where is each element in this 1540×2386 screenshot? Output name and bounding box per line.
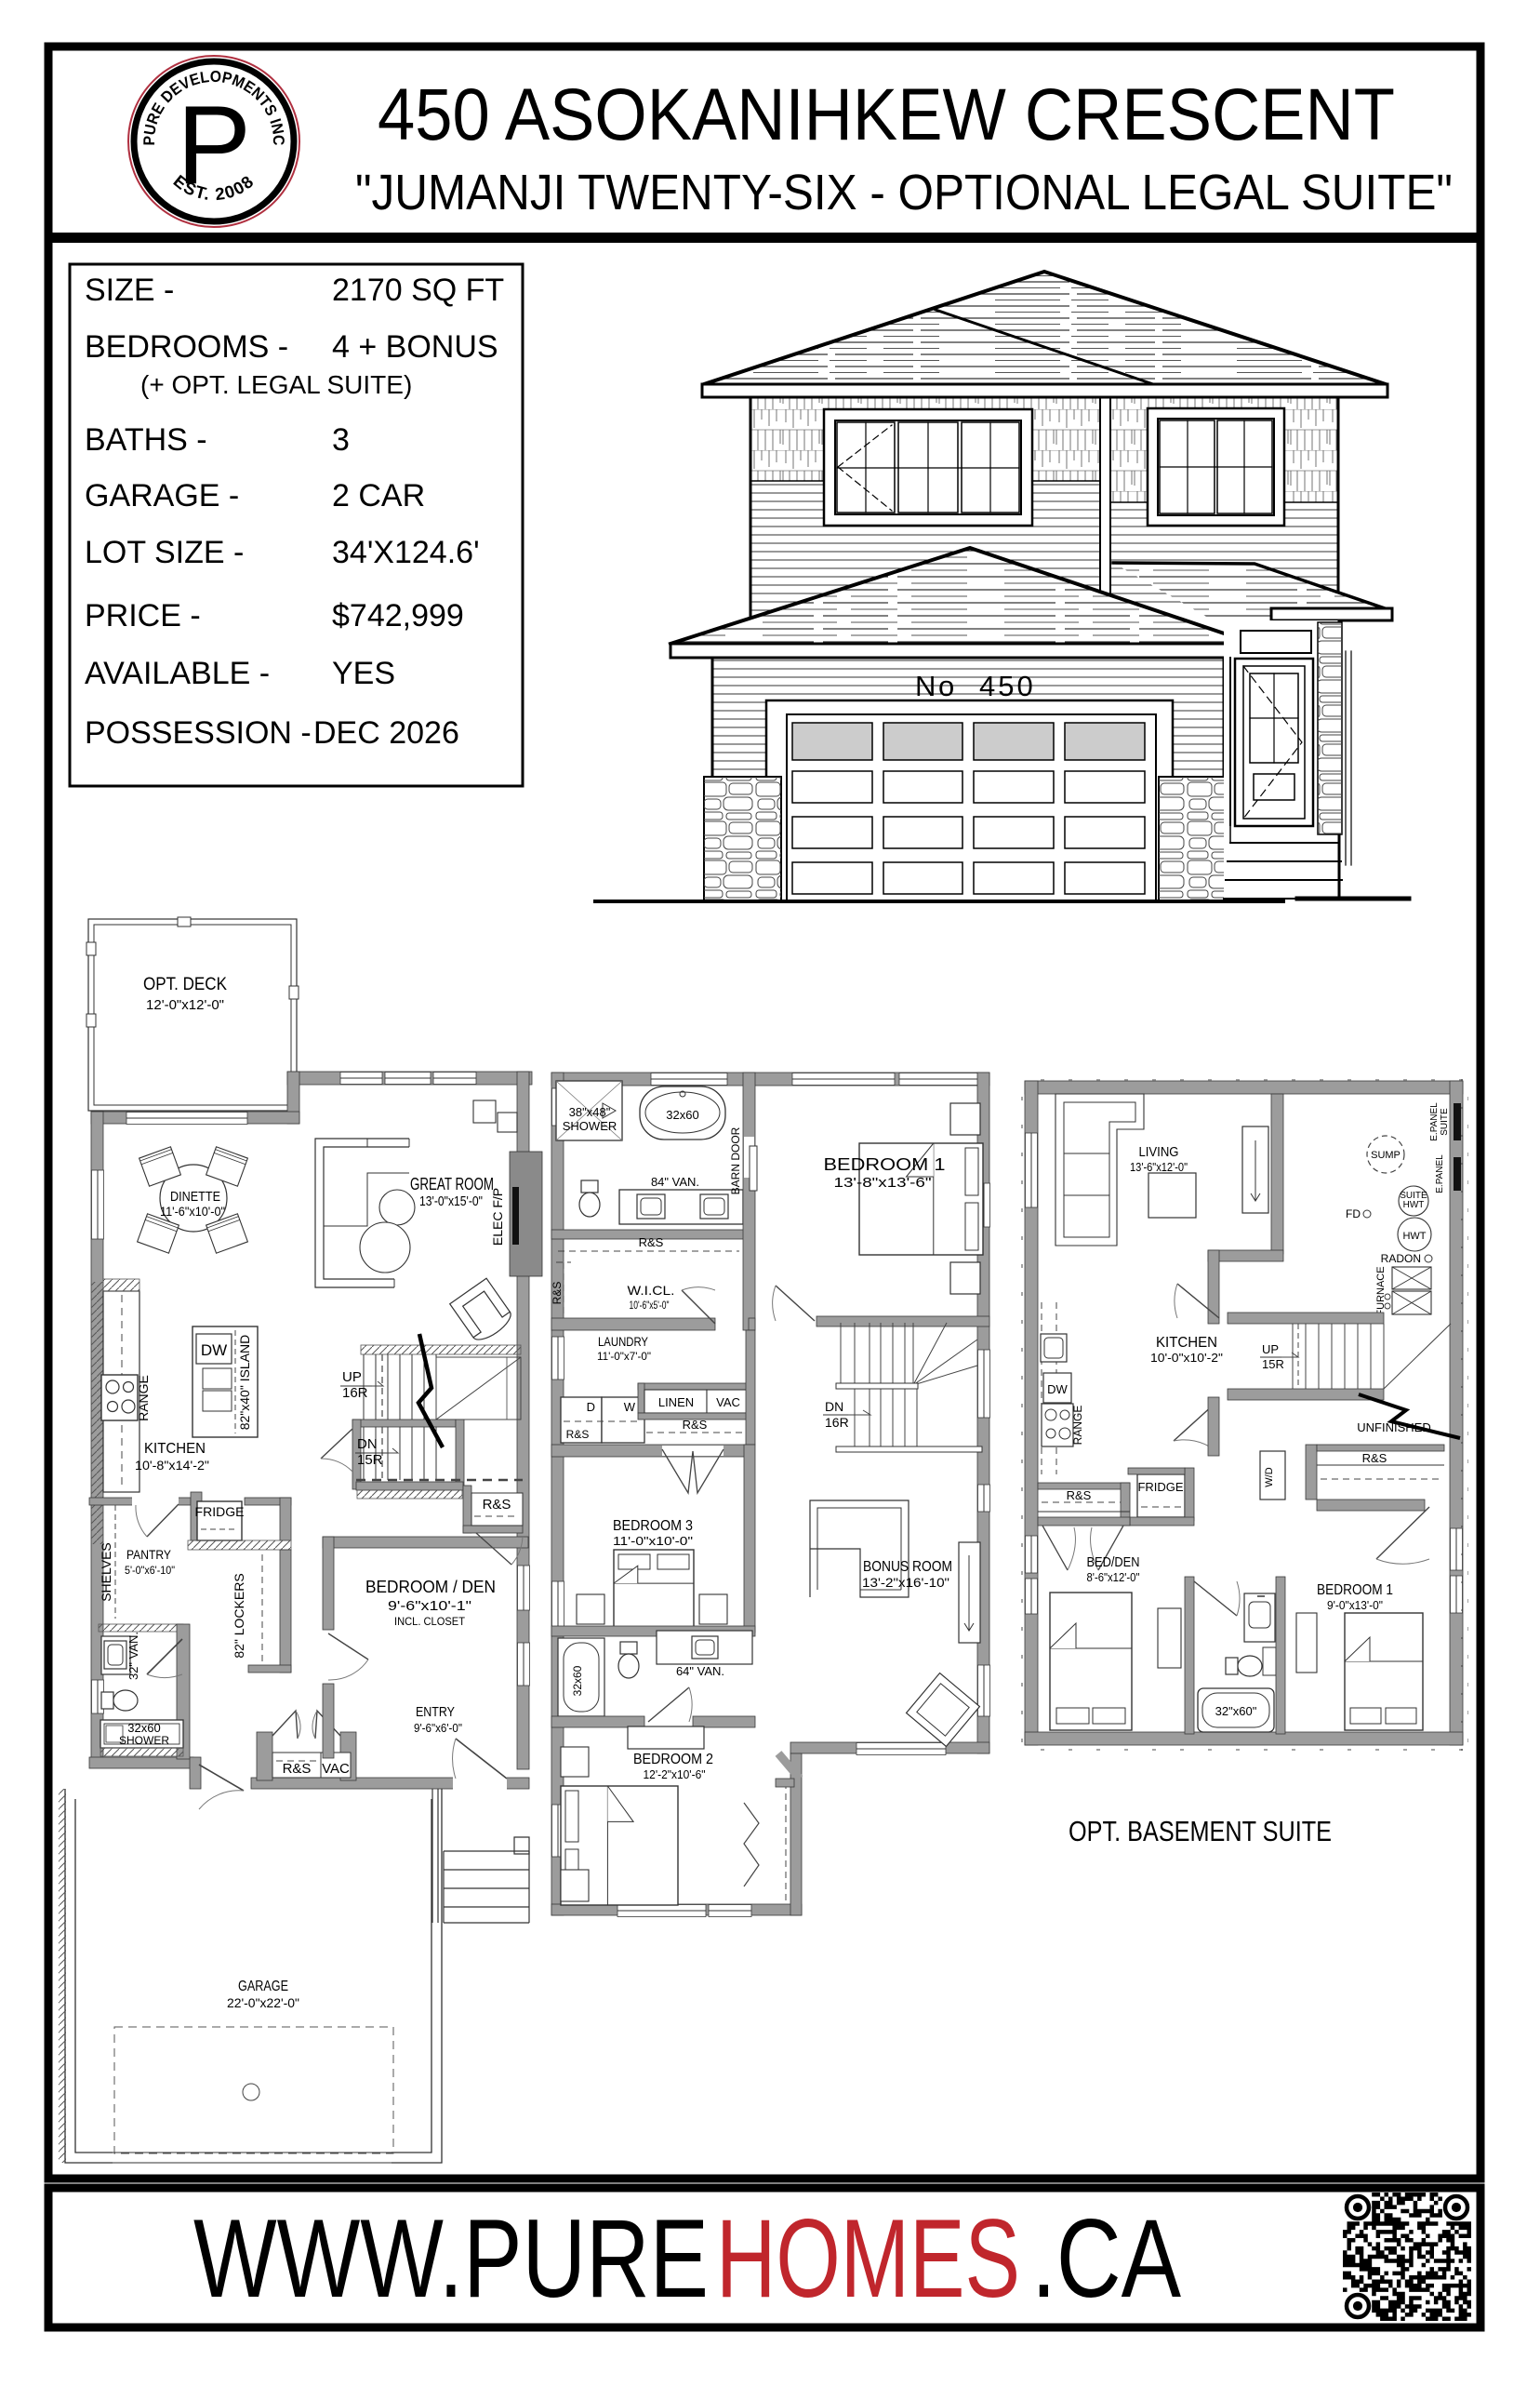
svg-text:450 ASOKANIHKEW CRESCENT: 450 ASOKANIHKEW CRESCENT — [378, 73, 1395, 155]
svg-text:RANGE: RANGE — [1071, 1406, 1084, 1446]
svg-text:HWT: HWT — [1402, 1231, 1426, 1242]
svg-text:DINETTE: DINETTE — [170, 1189, 220, 1205]
svg-text:11'-6"x10'-0": 11'-6"x10'-0" — [160, 1204, 225, 1219]
svg-text:11'-0"x7'-0": 11'-0"x7'-0" — [597, 1350, 651, 1363]
svg-text:BEDROOM 2: BEDROOM 2 — [633, 1752, 713, 1767]
svg-text:HWT: HWT — [1403, 1200, 1425, 1210]
svg-text:8'-6"x12'-0": 8'-6"x12'-0" — [1087, 1570, 1140, 1584]
svg-text:AVAILABLE -: AVAILABLE - — [85, 656, 270, 691]
svg-text:9'-6"x6'-0": 9'-6"x6'-0" — [414, 1721, 462, 1735]
svg-text:2 CAR: 2 CAR — [332, 478, 425, 513]
svg-text:12'-0"x12'-0": 12'-0"x12'-0" — [146, 997, 224, 1013]
svg-text:22'-0"x22'-0": 22'-0"x22'-0" — [227, 1995, 299, 2010]
svg-text:R&S: R&S — [483, 1497, 511, 1513]
svg-text:4 + BONUS: 4 + BONUS — [332, 329, 498, 365]
svg-text:32x60: 32x60 — [127, 1721, 160, 1735]
svg-text:BED/DEN: BED/DEN — [1087, 1554, 1140, 1570]
svg-text:ENTRY: ENTRY — [416, 1704, 455, 1720]
svg-text:10'-6"x5'-0": 10'-6"x5'-0" — [630, 1299, 670, 1312]
svg-text:32"x60": 32"x60" — [1215, 1704, 1257, 1718]
svg-text:SUITE: SUITE — [1440, 1108, 1450, 1136]
svg-text:R&S: R&S — [639, 1235, 664, 1249]
svg-text:R&S: R&S — [551, 1282, 564, 1305]
svg-text:DW: DW — [1047, 1382, 1068, 1396]
svg-text:BATHS -: BATHS - — [85, 422, 207, 458]
svg-text:FRIDGE: FRIDGE — [195, 1504, 245, 1519]
svg-text:SHOWER: SHOWER — [119, 1734, 169, 1747]
svg-text:E.PANEL: E.PANEL — [1435, 1154, 1445, 1193]
svg-text:BEDROOM / DEN: BEDROOM / DEN — [365, 1578, 496, 1596]
svg-text:"JUMANJI TWENTY-SIX - OPTIONAL: "JUMANJI TWENTY-SIX - OPTIONAL LEGAL SUI… — [355, 165, 1453, 220]
svg-text:BARN DOOR: BARN DOOR — [729, 1126, 742, 1194]
svg-text:SHELVES: SHELVES — [99, 1542, 113, 1602]
svg-text:LAUNDRY: LAUNDRY — [598, 1334, 649, 1349]
svg-text:LOT SIZE -: LOT SIZE - — [85, 535, 244, 570]
svg-text:R&S: R&S — [283, 1761, 312, 1777]
svg-text:R&S: R&S — [683, 1418, 708, 1432]
svg-text:16R: 16R — [825, 1415, 849, 1430]
svg-text:UNFINISHED: UNFINISHED — [1357, 1420, 1430, 1434]
svg-text:N: N — [915, 670, 936, 702]
svg-text:13'-8"x13'-6": 13'-8"x13'-6" — [834, 1175, 932, 1191]
svg-text:3: 3 — [332, 422, 350, 458]
svg-text:W/D: W/D — [1264, 1467, 1275, 1486]
svg-text:o: o — [938, 670, 954, 702]
svg-text:15R: 15R — [357, 1452, 383, 1468]
svg-text:DEC 2026: DEC 2026 — [313, 715, 459, 751]
svg-text:W: W — [624, 1400, 636, 1414]
svg-text:84" VAN.: 84" VAN. — [651, 1175, 699, 1189]
svg-text:WWW.PURE: WWW.PURE — [193, 2196, 709, 2321]
svg-text:32" VAN.: 32" VAN. — [126, 1632, 140, 1680]
svg-text:(+ OPT. LEGAL SUITE): (+ OPT. LEGAL SUITE) — [140, 370, 412, 399]
svg-text:R&S: R&S — [566, 1428, 590, 1441]
svg-text:11'-0"x10'-0": 11'-0"x10'-0" — [613, 1534, 693, 1548]
svg-text:E.PANEL: E.PANEL — [1429, 1102, 1440, 1141]
svg-text:38"x48": 38"x48" — [569, 1105, 611, 1119]
svg-text:FRIDGE: FRIDGE — [1137, 1480, 1183, 1494]
svg-text:32x60: 32x60 — [666, 1108, 698, 1122]
svg-text:5'-0"x6'-10": 5'-0"x6'-10" — [125, 1564, 175, 1577]
svg-text:BEDROOM 1: BEDROOM 1 — [824, 1155, 946, 1174]
svg-text:13'-0"x15'-0": 13'-0"x15'-0" — [419, 1193, 483, 1209]
svg-text:GARAGE: GARAGE — [238, 1979, 288, 1994]
svg-text:9'-0"x13'-0": 9'-0"x13'-0" — [1327, 1598, 1383, 1612]
svg-text:SUMP: SUMP — [1371, 1150, 1401, 1161]
svg-text:BEDROOM 3: BEDROOM 3 — [613, 1518, 693, 1534]
svg-text:.CA: .CA — [1031, 2196, 1181, 2321]
svg-text:82"x40" ISLAND: 82"x40" ISLAND — [237, 1335, 252, 1431]
svg-text:13'-6"x12'-0": 13'-6"x12'-0" — [1130, 1160, 1188, 1174]
svg-text:ELEC F/P: ELEC F/P — [490, 1188, 505, 1246]
svg-text:DN: DN — [357, 1436, 378, 1452]
svg-text:W.I.CL.: W.I.CL. — [628, 1283, 675, 1298]
svg-text:82" LOCKERS: 82" LOCKERS — [232, 1573, 246, 1658]
svg-text:OPT. DECK: OPT. DECK — [143, 975, 227, 994]
svg-text:KITCHEN: KITCHEN — [144, 1441, 206, 1457]
svg-text:PRICE -: PRICE - — [85, 598, 201, 633]
svg-text:VAC: VAC — [322, 1761, 350, 1777]
svg-text:INCL. CLOSET: INCL. CLOSET — [394, 1615, 466, 1628]
svg-text:LIVING: LIVING — [1139, 1144, 1179, 1160]
svg-text:15R: 15R — [1262, 1357, 1284, 1371]
svg-text:32x60: 32x60 — [571, 1665, 584, 1696]
svg-text:BEDROOM 1: BEDROOM 1 — [1317, 1582, 1393, 1598]
svg-text:450: 450 — [979, 670, 1036, 702]
svg-text:GREAT ROOM: GREAT ROOM — [410, 1175, 494, 1193]
svg-text:KITCHEN: KITCHEN — [1156, 1335, 1217, 1351]
svg-text:FD: FD — [1346, 1207, 1361, 1220]
svg-text:34'X124.6': 34'X124.6' — [332, 535, 480, 570]
svg-text:P: P — [177, 83, 251, 207]
svg-text:POSSESSION -: POSSESSION - — [85, 715, 312, 751]
svg-text:OPT. BASEMENT SUITE: OPT. BASEMENT SUITE — [1069, 1815, 1332, 1847]
svg-text:PANTRY: PANTRY — [126, 1547, 172, 1562]
svg-text:DW: DW — [201, 1341, 227, 1359]
svg-text:BEDROOMS -: BEDROOMS - — [85, 329, 288, 365]
svg-text:9'-6"x10'-1": 9'-6"x10'-1" — [388, 1598, 471, 1614]
svg-text:SIZE -: SIZE - — [85, 273, 174, 308]
svg-text:D: D — [587, 1400, 595, 1414]
svg-text:$742,999: $742,999 — [332, 598, 464, 633]
svg-text:16R: 16R — [342, 1385, 368, 1401]
svg-text:DN: DN — [825, 1399, 843, 1414]
svg-text:10'-8"x14'-2": 10'-8"x14'-2" — [135, 1458, 209, 1473]
svg-text:R&S: R&S — [1362, 1451, 1387, 1465]
svg-text:HOMES: HOMES — [716, 2196, 1020, 2321]
svg-text:VAC: VAC — [716, 1395, 740, 1409]
svg-text:RANGE: RANGE — [136, 1375, 151, 1421]
svg-text:R&S: R&S — [1067, 1488, 1092, 1502]
svg-text:BONUS ROOM: BONUS ROOM — [863, 1559, 952, 1575]
svg-text:UP: UP — [1262, 1342, 1279, 1356]
svg-text:RADON: RADON — [1381, 1252, 1421, 1265]
svg-text:LINEN: LINEN — [658, 1395, 694, 1409]
svg-text:GARAGE -: GARAGE - — [85, 478, 239, 513]
svg-text:FURNACE: FURNACE — [1375, 1266, 1387, 1315]
svg-text:SHOWER: SHOWER — [563, 1119, 617, 1133]
svg-text:2170 SQ FT: 2170 SQ FT — [332, 273, 504, 308]
svg-text:12'-2"x10'-6": 12'-2"x10'-6" — [644, 1767, 706, 1781]
svg-text:UP: UP — [342, 1369, 362, 1385]
svg-text:13'-2"x16'-10": 13'-2"x16'-10" — [862, 1575, 949, 1590]
svg-text:10'-0"x10'-2": 10'-0"x10'-2" — [1150, 1351, 1223, 1365]
svg-text:64" VAN.: 64" VAN. — [676, 1664, 724, 1678]
svg-text:YES: YES — [332, 656, 395, 691]
